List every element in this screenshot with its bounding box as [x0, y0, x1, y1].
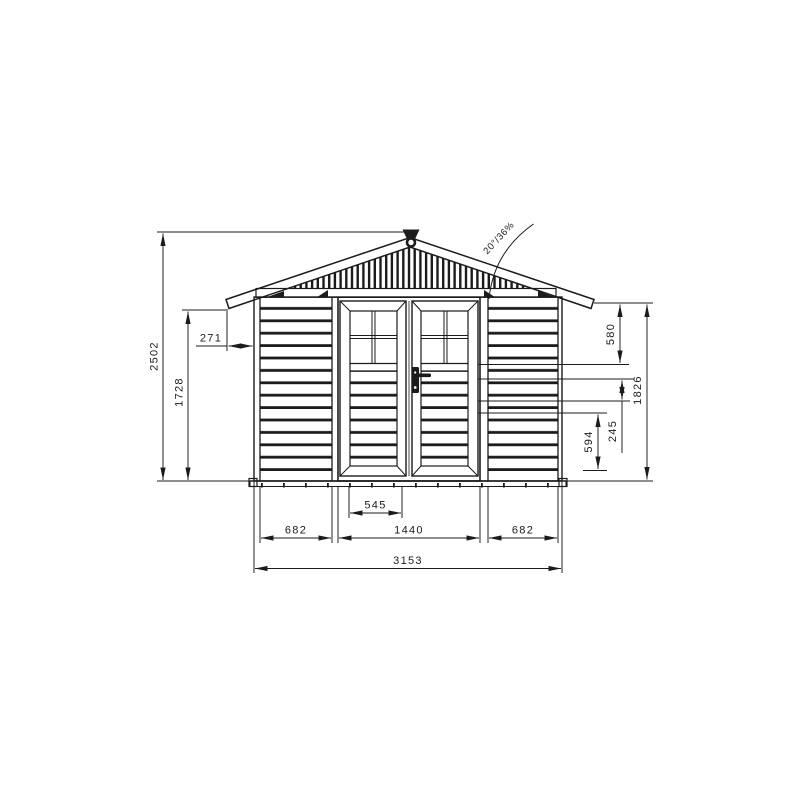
dim-label-left-bay: 682 — [285, 525, 307, 537]
dim-label-roof-overhang: 271 — [200, 333, 222, 345]
dim-label-lower-panel: 594 — [583, 430, 595, 452]
dim-wall-height: 1826 — [632, 305, 647, 480]
double-door — [338, 297, 480, 481]
dim-label-right-bay: 682 — [512, 525, 534, 537]
dim-label-wall-height: 1826 — [632, 375, 644, 405]
roof-finial — [403, 230, 420, 247]
dim-label-door-leaf-width: 545 — [364, 500, 386, 512]
door-left-leaf — [340, 301, 406, 476]
right-wall-siding — [488, 298, 558, 481]
shed-elevation-page: 20°/36% — [0, 0, 800, 800]
dim-overall-height: 2502 — [149, 234, 164, 481]
shed-front-elevation-drawing: 20°/36% — [0, 0, 800, 800]
dim-label-overall-width: 3153 — [393, 555, 423, 567]
dim-right-bay: 682 — [489, 525, 557, 539]
dim-top-to-window-sill: 580 — [605, 305, 620, 364]
dim-eave-height: 1728 — [174, 312, 189, 481]
dim-overall-width: 3153 — [255, 555, 561, 569]
dim-door-leaf-width: 545 — [350, 500, 401, 514]
dim-roof-overhang: 271 — [200, 333, 253, 347]
dim-left-bay: 682 — [261, 525, 331, 539]
dim-lower-panel: 594 — [583, 415, 598, 470]
door-left-slats — [350, 371, 397, 466]
door-window-left — [350, 311, 397, 371]
walls — [254, 297, 562, 481]
top-rail — [256, 289, 556, 298]
door-right-leaf — [412, 301, 478, 476]
dim-label-mid-panel: 245 — [607, 420, 619, 442]
dim-label-overall-height: 2502 — [149, 341, 161, 371]
dim-door-bay: 1440 — [339, 525, 479, 539]
gable-cladding — [284, 248, 536, 290]
dim-label-door-bay: 1440 — [394, 525, 424, 537]
door-window-right — [421, 311, 468, 371]
dim-mid-panel: 245 — [607, 381, 622, 443]
dim-label-eave-height: 1728 — [174, 377, 186, 407]
door-right-slats — [421, 371, 468, 466]
dim-label-top-to-window-sill: 580 — [605, 323, 617, 345]
roof-pitch-label: 20°/36% — [481, 220, 516, 257]
left-wall-siding — [260, 298, 332, 481]
